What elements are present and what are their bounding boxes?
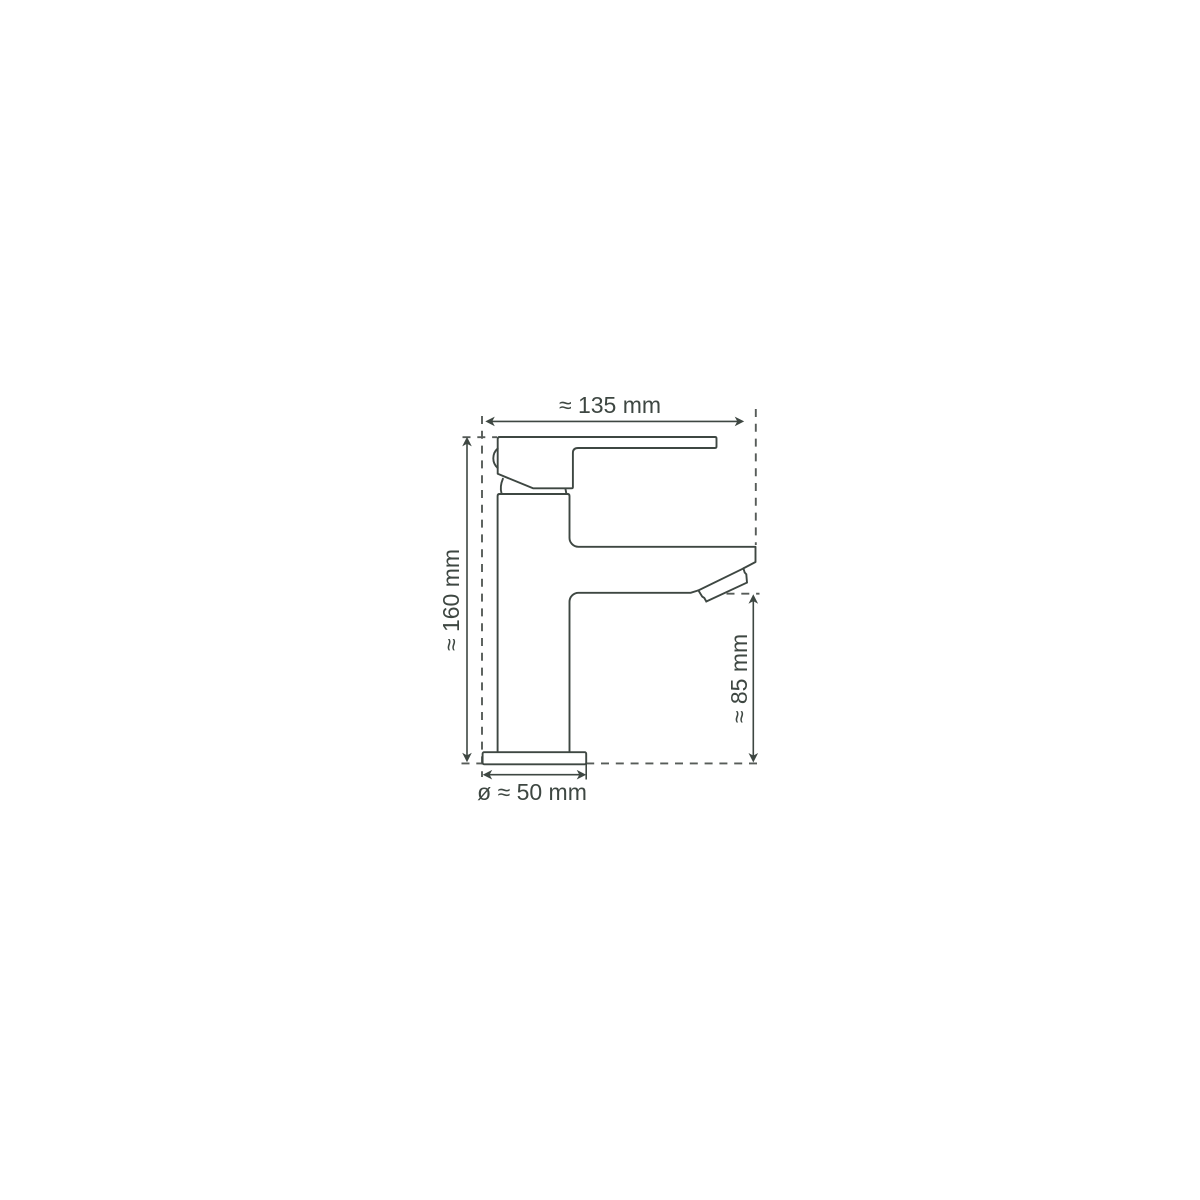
svg-text:ø ≈ 50 mm: ø ≈ 50 mm — [477, 779, 587, 805]
svg-text:≈ 85 mm: ≈ 85 mm — [726, 634, 752, 723]
svg-text:≈ 160 mm: ≈ 160 mm — [438, 549, 464, 651]
svg-text:≈ 135 mm: ≈ 135 mm — [559, 392, 661, 418]
